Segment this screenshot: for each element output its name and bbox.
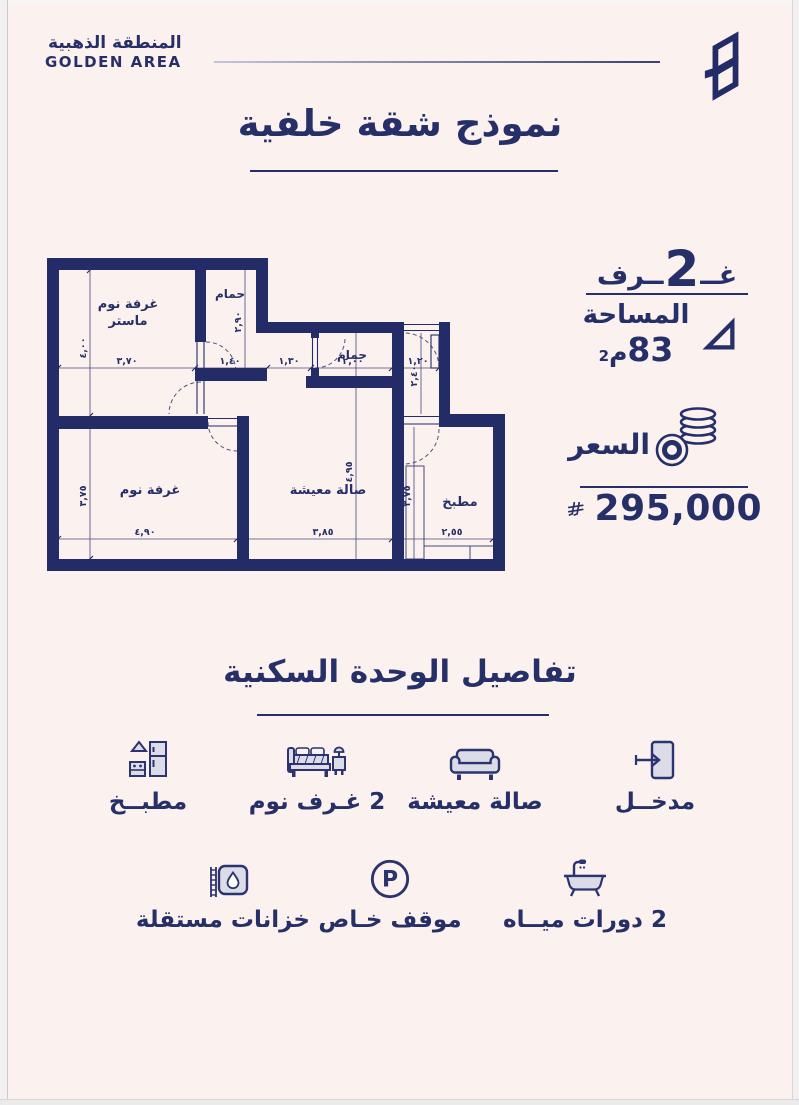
dim-master-width: ٣,٧٠	[116, 356, 137, 367]
dim-bedroom-width: ٤,٩٠	[134, 527, 155, 538]
dim-bedroom-height: ٣,٧٥	[78, 485, 89, 506]
parking-icon: P	[369, 858, 411, 900]
feature-tanks: خزانات مستقلة	[146, 846, 310, 933]
area-texts: المساحة 83م2	[583, 301, 690, 369]
feature-tanks-label: خزانات مستقلة	[146, 907, 310, 933]
dim-hall-width: ١,٣٠	[278, 356, 299, 367]
dim-kitchen-width: ٢,٥٥	[441, 527, 462, 538]
feature-kitchen-label: مطبــخ	[66, 789, 230, 815]
header-divider-line	[214, 61, 660, 63]
area-value: 83م2	[583, 331, 690, 369]
room-label-bedroom: غرفة نوم	[120, 483, 180, 498]
area-unit-exponent: 2	[599, 347, 609, 365]
feature-bathrooms: 2 دورات ميــاه	[503, 846, 667, 933]
price-value: 295,000	[595, 488, 762, 529]
dim-living-height: ٤,٩٥	[344, 461, 355, 482]
coins-icon	[646, 400, 724, 476]
area-block: المساحة 83م2	[572, 301, 750, 369]
area-triangle-icon	[701, 316, 739, 354]
feature-kitchen: مطبــخ	[66, 728, 230, 815]
saudi-riyal-icon	[566, 497, 586, 521]
water-tank-icon	[205, 860, 251, 900]
brand-name-english: GOLDEN AREA	[45, 54, 182, 71]
entrance-door-icon	[633, 738, 677, 782]
rooms-text-right: غــ	[700, 262, 737, 290]
dim-bath1-height: ٢,٩٠	[233, 311, 244, 332]
dim-bath2-width: ٢,٠٠	[342, 356, 363, 367]
room-label-master-2: ماستر	[107, 314, 147, 329]
sofa-icon	[447, 744, 503, 782]
page-title: نموذج شقة خلفية	[200, 102, 600, 145]
feature-entrance: مدخــل	[573, 728, 737, 815]
area-number: 83	[627, 330, 673, 369]
area-label: المساحة	[583, 301, 690, 331]
kitchen-icon	[122, 736, 174, 782]
photo-edge-top	[0, 0, 799, 4]
photo-edge-bottom	[0, 1099, 799, 1105]
room-label-bath1: حمام	[215, 287, 245, 302]
dim-master-height: ٤,٠٠	[78, 337, 89, 358]
title-underline	[250, 170, 558, 172]
svg-text:P: P	[382, 868, 398, 893]
dim-entry-width: ١,٢٠	[407, 356, 428, 367]
feature-bedrooms-label: 2 غـرف نوم	[235, 789, 399, 815]
room-label-living: صالة معيشة	[290, 483, 367, 498]
price-line: 295,000	[566, 488, 762, 529]
feature-bedrooms: 2 غـرف نوم	[235, 728, 399, 815]
details-title: تفاصيل الوحدة السكنية	[200, 654, 600, 690]
feature-parking-label: موقف خـاص	[308, 907, 472, 933]
feature-entrance-label: مدخــل	[573, 789, 737, 815]
feature-living-room-label: صالة معيشة	[393, 789, 557, 815]
brand-block: المنطقة الذهبية GOLDEN AREA	[45, 34, 182, 71]
bathtub-icon	[560, 856, 610, 900]
bed-icon	[286, 738, 348, 782]
dim-kitchen-height: ٣,٧٥	[402, 485, 413, 506]
kitchen-counter	[406, 466, 493, 559]
rooms-count: غــ 2 ــرف	[584, 232, 750, 290]
feature-living-room: صالة معيشة	[393, 728, 557, 815]
feature-parking: P موقف خـاص	[308, 846, 472, 933]
photo-edge-left	[0, 0, 8, 1105]
real-estate-flyer: المنطقة الذهبية GOLDEN AREA نموذج شقة خل…	[0, 0, 799, 1105]
dim-living-width: ٣,٨٥	[312, 527, 333, 538]
price-label: السعر	[578, 428, 650, 461]
brand-name-arabic: المنطقة الذهبية	[45, 34, 182, 54]
room-label-kitchen: مطبخ	[442, 495, 477, 510]
room-label-master-1: غرفة نوم	[98, 297, 158, 312]
rooms-text-left: ــرف	[597, 262, 664, 290]
brand-logo-icon	[702, 27, 748, 107]
floor-plan: غرفة نوم ماستر حمام حمام غرفة نوم صالة م…	[40, 256, 515, 574]
dim-entry-height: ٢,٤٠	[409, 365, 420, 386]
rooms-underline	[586, 293, 748, 295]
photo-edge-right	[792, 0, 799, 1105]
dim-bath1-width: ١,٤٠	[219, 356, 240, 367]
feature-bathrooms-label: 2 دورات ميــاه	[503, 907, 667, 933]
rooms-number: 2	[664, 249, 699, 290]
details-underline	[257, 714, 549, 716]
area-unit-letter: م	[609, 338, 627, 367]
